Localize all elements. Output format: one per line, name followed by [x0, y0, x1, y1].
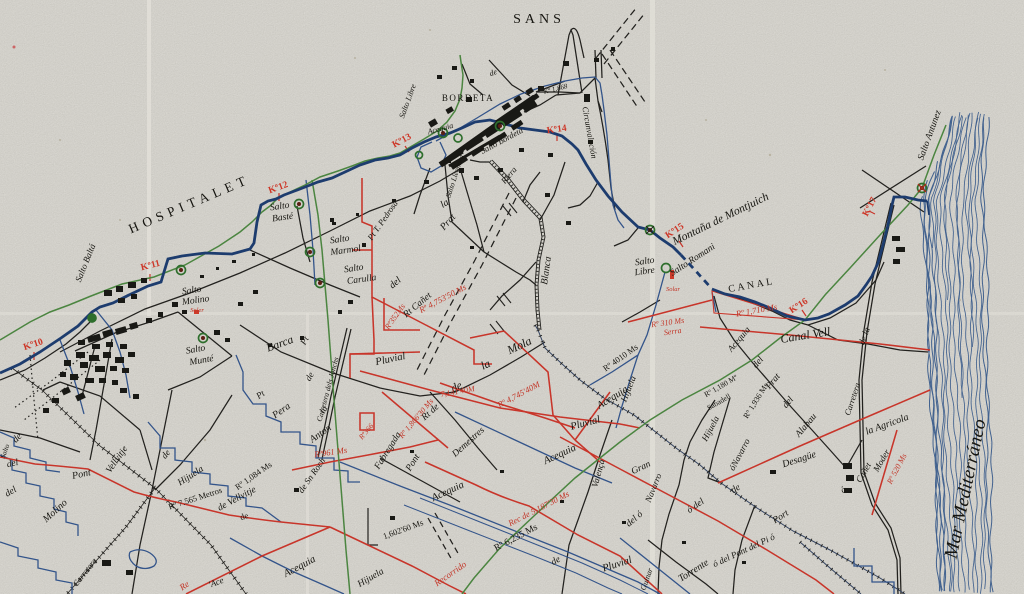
svg-text:Solar: Solar — [666, 286, 681, 293]
svg-text:Soler: Soler — [190, 307, 204, 314]
svg-text:SANS: SANS — [513, 12, 565, 27]
svg-text:BORDETA: BORDETA — [442, 93, 494, 103]
